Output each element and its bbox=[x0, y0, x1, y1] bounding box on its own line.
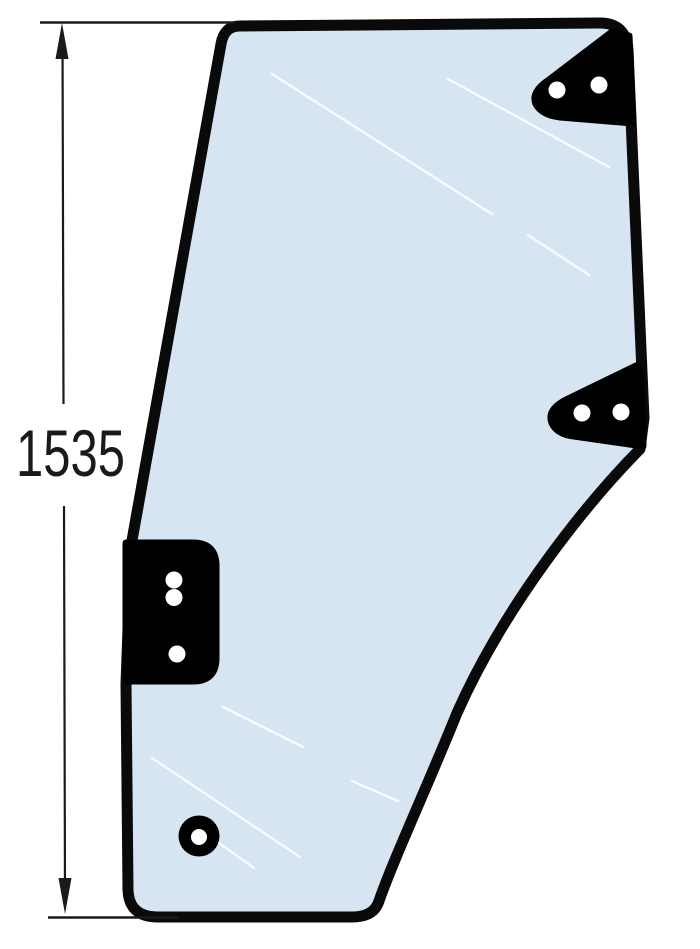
bracket-hole bbox=[613, 404, 630, 421]
bracket-hole bbox=[549, 82, 566, 99]
bracket-hole bbox=[166, 589, 183, 606]
technical-drawing: 1535 bbox=[0, 0, 700, 949]
bolt-hole-center bbox=[191, 829, 207, 845]
bracket-hole bbox=[169, 646, 186, 663]
dimension-arrow-up-icon bbox=[56, 23, 69, 59]
bracket-hole bbox=[591, 77, 608, 94]
dimension-label: 1535 bbox=[16, 416, 125, 490]
dimension-arrow-down-icon bbox=[59, 878, 72, 914]
glass-panel bbox=[126, 23, 644, 917]
left-bracket bbox=[126, 543, 216, 681]
dimension-line-upper bbox=[63, 36, 64, 404]
bracket-hole bbox=[574, 405, 591, 422]
dimension-line-lower bbox=[64, 506, 65, 895]
bracket-hole bbox=[166, 572, 183, 589]
drawing-canvas: 1535 bbox=[0, 0, 700, 949]
